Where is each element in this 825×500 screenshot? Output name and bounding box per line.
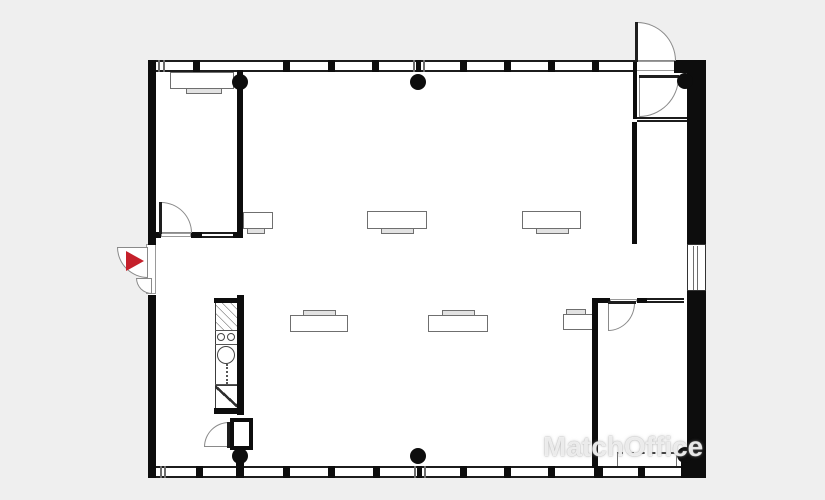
kitchenette-sink-circle [227,333,235,341]
desk-row1-mid [367,211,427,229]
window-band-top [156,60,636,72]
window-mullion [283,466,290,478]
interior-wall-left [237,70,243,238]
column-dot [410,448,426,464]
kitchenette-sink-circle [217,333,225,341]
window-mullion [460,466,467,478]
window-mullion [328,60,335,72]
window-mullion [160,466,162,478]
column-dot [232,74,248,90]
window-mullion [416,60,421,72]
entrance-arrow-icon [126,251,144,271]
window-mullion [697,246,698,290]
window-mullion [193,60,200,72]
kitchenette-divider [215,330,239,331]
desk-row1-right [522,211,581,229]
window-mullion [504,60,511,72]
storage-box [230,418,253,450]
vestibule-window [637,117,687,122]
meeting-room-top-wall-b [637,298,647,303]
window-mullion [548,60,555,72]
north-exit-threshold [636,61,675,71]
kitchenette-appliance [215,385,239,408]
window-mullion [413,60,415,72]
window-mullion [164,466,166,478]
room1-window [202,232,233,238]
window-mullion [548,466,555,478]
window-mullion [163,60,165,72]
window-mullion [423,60,425,72]
watermark-text: MatchOffice [543,431,703,463]
entrance-door-small [136,278,152,294]
room1-bottom-wall-b [191,232,202,238]
window-mullion [196,466,203,478]
desk-top-left [170,72,234,89]
window-mullion [424,466,426,478]
watermark: MatchOffice [543,430,575,464]
window-mullion [638,466,645,478]
room1-door-threshold [161,233,191,237]
kitchen-cap-top [214,298,244,303]
north-exit-door-leaf [635,22,638,62]
north-exit-door [637,22,676,61]
floor [148,60,706,478]
room1-door-leaf [159,202,162,234]
desk-row2-left [290,315,348,332]
storage-door-leaf [227,422,230,448]
kitchenette-counter-hatch [216,302,238,330]
kitchen-cap-bottom [214,408,244,414]
interior-wall-right [632,122,637,244]
meeting-room-window [647,298,684,303]
desk-row2-mid [428,315,488,332]
window-mullion [236,466,244,478]
window-mullion [693,246,694,290]
floor-plan-canvas: MatchOffice [0,0,825,500]
kitchenette-sink-circle [217,346,235,364]
window-mullion [592,60,599,72]
window-mullion [372,60,379,72]
column-dot [232,448,248,464]
window-mullion [373,466,380,478]
window-mullion [414,466,416,478]
window-mullion [283,60,290,72]
vestibule-door-leaf [639,75,679,78]
vestibule-left-wall [633,62,637,119]
window-mullion [158,60,160,72]
window-mullion [417,466,422,478]
desk-row2-right [563,314,595,330]
column-dot [677,73,693,89]
desk-row1-left [243,212,273,229]
room1-bottom-wall-c [233,232,243,238]
window-mullion [594,466,603,478]
kitchen-wall-right [237,295,244,415]
left-wall-upper [148,60,156,245]
kitchenette-divider [215,344,239,345]
left-wall-lower [148,295,156,478]
kitchenette-dotted-line [226,364,228,384]
meeting-room-door-leaf [608,301,636,304]
window-mullion [328,466,335,478]
window-mullion [460,60,467,72]
column-dot [410,74,426,90]
right-wall-upper [687,62,706,244]
window-mullion [504,466,511,478]
